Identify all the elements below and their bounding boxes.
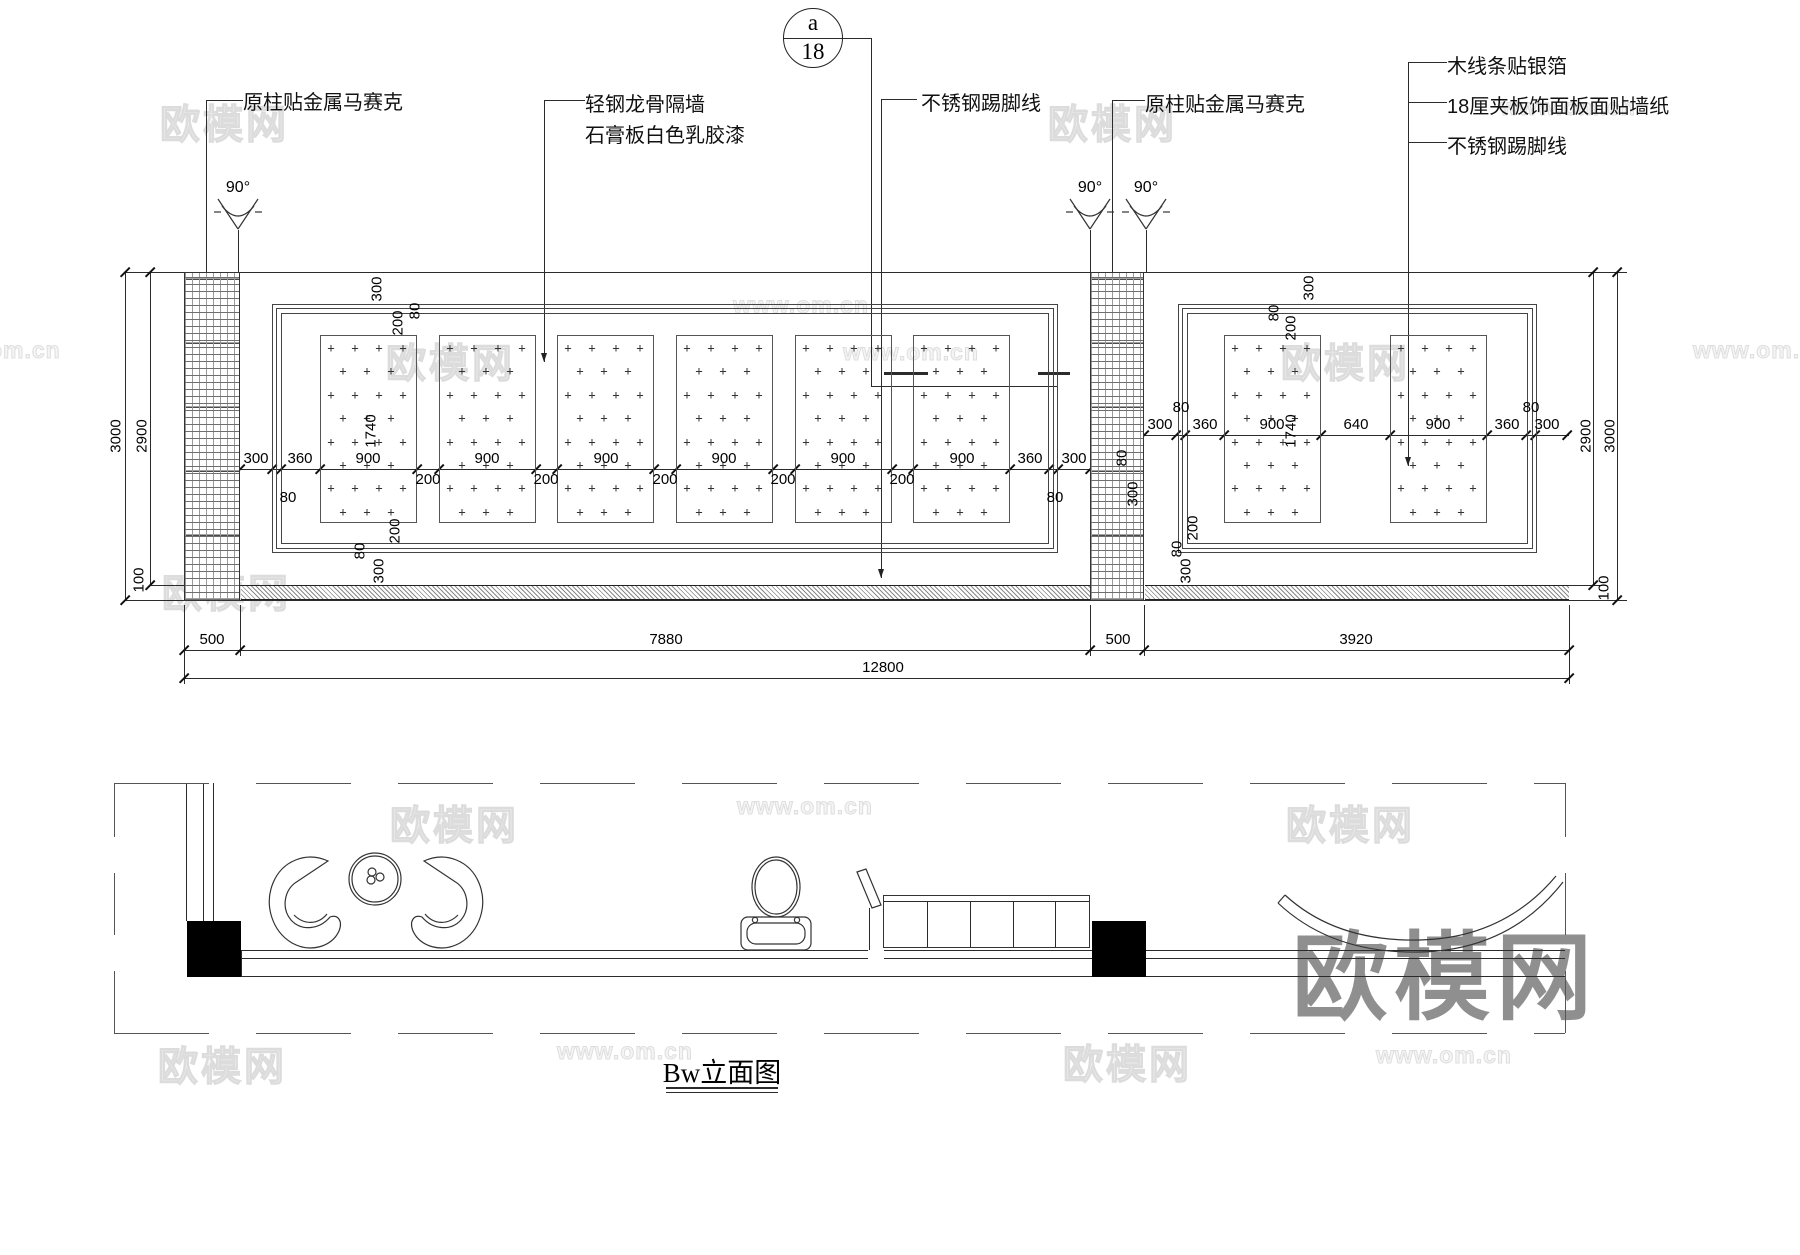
dim-label-vertical: 200 — [390, 310, 407, 335]
panel-cross-mark: + — [826, 389, 833, 401]
panel-cross-mark: + — [1303, 482, 1310, 494]
panel-cross-mark: + — [624, 459, 631, 471]
toilet-icon — [738, 853, 814, 953]
line — [1408, 62, 1447, 63]
panel-cross-mark: + — [1445, 482, 1452, 494]
dim-label-vertical: 300 — [1178, 558, 1195, 583]
panel-cross-mark: + — [695, 412, 702, 424]
panel-cross-mark: + — [624, 506, 631, 518]
line — [206, 100, 243, 101]
panel-cross-mark: + — [944, 342, 951, 354]
panel-cross-mark: + — [482, 506, 489, 518]
dim-label: 900 — [830, 450, 855, 467]
callout-label: 木线条贴银箔 — [1447, 50, 1567, 79]
panel-cross-mark: + — [1421, 436, 1428, 448]
dim-label-vertical: 80 — [1266, 305, 1283, 322]
panel-cross-mark: + — [862, 506, 869, 518]
panel-cross-mark: + — [636, 389, 643, 401]
dim-label-vertical: 2900 — [134, 419, 151, 452]
dim-label: 900 — [474, 450, 499, 467]
panel-cross-mark: + — [1267, 365, 1274, 377]
panel-cross-mark: + — [826, 342, 833, 354]
panel-cross-mark: + — [1255, 482, 1262, 494]
panel-cross-mark: + — [743, 506, 750, 518]
panel-cross-mark: + — [458, 506, 465, 518]
panel-cross-mark: + — [518, 389, 525, 401]
panel-cross-mark: + — [992, 342, 999, 354]
panel-cross-mark: + — [494, 389, 501, 401]
panel-cross-mark: + — [838, 506, 845, 518]
panel-cross-mark: + — [494, 436, 501, 448]
panel-cross-mark: + — [814, 459, 821, 471]
panel-cross-mark: + — [743, 459, 750, 471]
panel-cross-mark: + — [731, 342, 738, 354]
dim-label-vertical: 100 — [131, 567, 148, 592]
panel-cross-mark: + — [576, 506, 583, 518]
dim-label: 900 — [355, 450, 380, 467]
dim-label-vertical: 2900 — [1578, 419, 1595, 452]
panel-cross-mark: + — [1303, 389, 1310, 401]
panel-cross-mark: + — [719, 506, 726, 518]
dim-label-vertical: 100 — [1596, 575, 1613, 600]
panel-cross-mark: + — [850, 436, 857, 448]
line — [213, 783, 214, 921]
panel-cross-mark: + — [351, 482, 358, 494]
line — [666, 1092, 778, 1093]
dim-label: 300 — [1534, 416, 1559, 433]
panel-cross-mark: + — [850, 342, 857, 354]
panel-cross-mark: + — [980, 412, 987, 424]
line — [184, 605, 185, 684]
panel-cross-mark: + — [576, 459, 583, 471]
panel-cross-mark: + — [1421, 342, 1428, 354]
dim-label-vertical: 80 — [1169, 541, 1186, 558]
panel-cross-mark: + — [470, 436, 477, 448]
line — [881, 99, 917, 100]
line — [203, 783, 204, 921]
panel-cross-mark: + — [683, 389, 690, 401]
panel-cross-mark: + — [731, 482, 738, 494]
bench-divider — [1013, 901, 1014, 947]
panel-cross-mark: + — [446, 389, 453, 401]
panel-cross-mark: + — [1433, 506, 1440, 518]
callout-label: 石膏板白色乳胶漆 — [585, 119, 745, 148]
dim-label: 300 — [1061, 450, 1086, 467]
dim-label: 3920 — [1339, 631, 1372, 648]
panel-cross-mark: + — [755, 389, 762, 401]
dim-label-vertical: 300 — [1125, 481, 1142, 506]
panel-cross-mark: + — [387, 459, 394, 471]
panel-cross-mark: + — [932, 365, 939, 377]
dim-label: 360 — [1192, 416, 1217, 433]
panel-cross-mark: + — [518, 342, 525, 354]
dim-label: 360 — [1017, 450, 1042, 467]
line — [125, 272, 126, 600]
panel-cross-mark: + — [1469, 482, 1476, 494]
panel-cross-mark: + — [1409, 412, 1416, 424]
dim-label-vertical: 200 — [1185, 515, 1202, 540]
panel-cross-mark: + — [920, 482, 927, 494]
line — [238, 230, 239, 272]
panel-cross-mark: + — [1445, 389, 1452, 401]
panel-cross-mark: + — [339, 506, 346, 518]
panel-cross-mark: + — [327, 342, 334, 354]
panel-cross-mark: + — [612, 389, 619, 401]
panel-cross-mark: + — [387, 506, 394, 518]
panel-cross-mark: + — [707, 436, 714, 448]
panel-cross-mark: + — [1397, 342, 1404, 354]
dim-label: 80 — [1173, 399, 1190, 416]
line — [186, 783, 187, 921]
line — [241, 950, 242, 976]
panel-cross-mark: + — [992, 389, 999, 401]
panel-cross-mark: + — [850, 482, 857, 494]
wall-panel: ++++++++++++++++++++++++++++ — [913, 335, 1010, 523]
panel-cross-mark: + — [731, 389, 738, 401]
line — [184, 678, 1569, 679]
panel-cross-mark: + — [1457, 506, 1464, 518]
panel-cross-mark: + — [920, 389, 927, 401]
panel-cross-mark: + — [399, 436, 406, 448]
panel-cross-mark: + — [494, 482, 501, 494]
panel-cross-mark: + — [683, 436, 690, 448]
dim-label-vertical: 80 — [407, 303, 424, 320]
panel-cross-mark: + — [874, 389, 881, 401]
panel-cross-mark: + — [612, 342, 619, 354]
panel-cross-mark: + — [1231, 436, 1238, 448]
watermark: 欧模网 — [158, 1034, 287, 1092]
panel-cross-mark: + — [968, 389, 975, 401]
panel-cross-mark: + — [564, 436, 571, 448]
dim-label: 80 — [1047, 489, 1064, 506]
callout-label: 原柱贴金属马赛克 — [243, 86, 403, 115]
panel-cross-mark: + — [576, 365, 583, 377]
dim-label-vertical: 200 — [1283, 315, 1300, 340]
section-marker-letter: a — [784, 10, 842, 36]
panel-cross-mark: + — [600, 506, 607, 518]
line — [544, 100, 585, 101]
panel-cross-mark: + — [755, 482, 762, 494]
panel-cross-mark: + — [956, 506, 963, 518]
angle-label: 90° — [1134, 179, 1158, 197]
plan-boundary-left — [114, 783, 115, 1033]
panel-cross-mark: + — [838, 412, 845, 424]
dim-label: 900 — [949, 450, 974, 467]
panel-cross-mark: + — [387, 412, 394, 424]
dim-label-vertical: 300 — [1301, 275, 1318, 300]
panel-cross-mark: + — [743, 412, 750, 424]
wall-panel: ++++++++++++++++++++++++++++ — [795, 335, 892, 523]
watermark: 欧模网 — [390, 793, 519, 851]
panel-cross-mark: + — [470, 389, 477, 401]
watermark: www.om.cn — [737, 793, 873, 820]
angle-label: 90° — [1078, 179, 1102, 197]
panel-cross-mark: + — [1457, 412, 1464, 424]
callout-label: 不锈钢踢脚线 — [921, 87, 1041, 116]
panel-cross-mark: + — [1279, 342, 1286, 354]
dim-label: 200 — [770, 471, 795, 488]
panel-cross-mark: + — [1279, 389, 1286, 401]
panel-cross-mark: + — [636, 342, 643, 354]
panel-cross-mark: + — [506, 459, 513, 471]
dim-label-vertical: 80 — [1114, 450, 1131, 467]
panel-cross-mark: + — [339, 412, 346, 424]
dim-label: 12800 — [862, 659, 904, 676]
dim-label: 200 — [652, 471, 677, 488]
dim-label-vertical: 1740 — [1283, 414, 1300, 447]
panel-cross-mark: + — [1267, 459, 1274, 471]
dim-label: 7880 — [649, 631, 682, 648]
panel-cross-mark: + — [932, 412, 939, 424]
panel-cross-mark: + — [1291, 459, 1298, 471]
panel-cross-mark: + — [968, 342, 975, 354]
plan-bench — [883, 895, 1090, 948]
panel-cross-mark: + — [719, 412, 726, 424]
panel-cross-mark: + — [612, 482, 619, 494]
panel-cross-mark: + — [636, 436, 643, 448]
panel-cross-mark: + — [518, 482, 525, 494]
panel-cross-mark: + — [494, 342, 501, 354]
panel-cross-mark: + — [1409, 459, 1416, 471]
dim-label: 200 — [415, 471, 440, 488]
panel-cross-mark: + — [1255, 389, 1262, 401]
panel-cross-mark: + — [1457, 365, 1464, 377]
plan-column-left — [187, 921, 241, 977]
panel-cross-mark: + — [755, 436, 762, 448]
panel-cross-mark: + — [932, 506, 939, 518]
panel-cross-mark: + — [968, 482, 975, 494]
panel-cross-mark: + — [636, 482, 643, 494]
panel-cross-mark: + — [1303, 436, 1310, 448]
panel-cross-mark: + — [1433, 459, 1440, 471]
dim-label: 200 — [533, 471, 558, 488]
panel-cross-mark: + — [327, 389, 334, 401]
panel-cross-mark: + — [588, 342, 595, 354]
curved-counter-icon — [1270, 862, 1570, 962]
panel-cross-mark: + — [458, 412, 465, 424]
panel-cross-mark: + — [399, 389, 406, 401]
panel-cross-mark: + — [683, 342, 690, 354]
panel-cross-mark: + — [1409, 506, 1416, 518]
panel-cross-mark: + — [588, 482, 595, 494]
cad-drawing-canvas: 欧模网欧模网欧模网欧模网欧模网欧模网欧模网欧模网欧模网www.om.cnwww.… — [0, 0, 1800, 1255]
dim-label: 500 — [199, 631, 224, 648]
plan-boundary-bottom — [114, 1033, 1565, 1034]
panel-cross-mark: + — [1409, 365, 1416, 377]
dim-label: 640 — [1343, 416, 1368, 433]
panel-cross-mark: + — [624, 412, 631, 424]
panel-cross-mark: + — [1397, 482, 1404, 494]
panel-cross-mark: + — [339, 365, 346, 377]
panel-cross-mark: + — [612, 436, 619, 448]
dim-label: 80 — [1523, 399, 1540, 416]
panel-cross-mark: + — [339, 459, 346, 471]
dim-label: 360 — [1494, 416, 1519, 433]
panel-cross-mark: + — [814, 412, 821, 424]
panel-cross-mark: + — [506, 412, 513, 424]
plan-boundary-top — [114, 783, 1565, 784]
panel-cross-mark: + — [1421, 482, 1428, 494]
panel-cross-mark: + — [862, 459, 869, 471]
panel-cross-mark: + — [624, 365, 631, 377]
armchair-icon — [396, 853, 488, 951]
armchair-icon — [264, 853, 356, 951]
panel-cross-mark: + — [980, 506, 987, 518]
plan-column-right — [1092, 921, 1146, 977]
dim-label-vertical: 80 — [352, 543, 369, 560]
panel-cross-mark: + — [327, 482, 334, 494]
panel-cross-mark: + — [1421, 389, 1428, 401]
dim-label-vertical: 200 — [387, 518, 404, 543]
panel-cross-mark: + — [932, 459, 939, 471]
panel-cross-mark: + — [1445, 342, 1452, 354]
dim-label: 900 — [1259, 416, 1284, 433]
angle-fan-icon — [1122, 196, 1170, 232]
panel-cross-mark: + — [826, 482, 833, 494]
angle-label: 90° — [226, 179, 250, 197]
callout-label: 不锈钢踢脚线 — [1447, 130, 1567, 159]
panel-cross-mark: + — [862, 412, 869, 424]
panel-cross-mark: + — [387, 365, 394, 377]
dim-label: 360 — [287, 450, 312, 467]
callout-label: 18厘夹板饰面板面贴墙纸 — [1447, 90, 1669, 119]
line — [241, 976, 1565, 977]
panel-cross-mark: + — [506, 506, 513, 518]
dim-label: 200 — [889, 471, 914, 488]
line — [1112, 100, 1145, 101]
round-table-icon — [346, 850, 404, 908]
panel-cross-mark: + — [564, 389, 571, 401]
panel-cross-mark: + — [1279, 482, 1286, 494]
watermark: 欧模网 — [1063, 1032, 1192, 1090]
panel-cross-mark: + — [1255, 436, 1262, 448]
line — [125, 600, 1627, 601]
panel-cross-mark: + — [1231, 482, 1238, 494]
panel-cross-mark: + — [600, 412, 607, 424]
panel-cross-mark: + — [695, 365, 702, 377]
line — [869, 908, 870, 950]
panel-cross-mark: + — [1397, 436, 1404, 448]
panel-cross-mark: + — [920, 436, 927, 448]
panel-cross-mark: + — [446, 436, 453, 448]
panel-cross-mark: + — [564, 342, 571, 354]
drawing-title: Bw立面图 — [663, 1051, 782, 1090]
panel-cross-mark: + — [1303, 342, 1310, 354]
panel-cross-mark: + — [802, 482, 809, 494]
panel-cross-mark: + — [1231, 342, 1238, 354]
panel-cross-mark: + — [695, 506, 702, 518]
panel-cross-mark: + — [826, 436, 833, 448]
panel-cross-mark: + — [470, 342, 477, 354]
dim-label: 900 — [711, 450, 736, 467]
panel-cross-mark: + — [707, 389, 714, 401]
panel-cross-mark: + — [1243, 506, 1250, 518]
panel-cross-mark: + — [707, 482, 714, 494]
section-marker-a18: a 18 — [783, 8, 843, 68]
bench-divider — [970, 901, 971, 947]
panel-cross-mark: + — [458, 365, 465, 377]
panel-cross-mark: + — [399, 342, 406, 354]
dim-label-vertical: 300 — [371, 558, 388, 583]
wall-panel: ++++++++++++++++++++++++++++ — [557, 335, 654, 523]
dim-label-vertical: 1740 — [363, 414, 380, 447]
line — [1408, 102, 1447, 103]
panel-cross-mark: + — [944, 389, 951, 401]
mosaic-column-left — [184, 272, 240, 601]
wall-panel: ++++++++++++++++++++++++++++ — [439, 335, 536, 523]
panel-cross-mark: + — [600, 365, 607, 377]
line — [1146, 230, 1147, 272]
panel-cross-mark: + — [802, 389, 809, 401]
bench-divider — [1055, 901, 1056, 947]
dim-label: 80 — [280, 489, 297, 506]
panel-cross-mark: + — [1445, 436, 1452, 448]
panel-cross-mark: + — [731, 436, 738, 448]
panel-cross-mark: + — [351, 436, 358, 448]
dim-label: 300 — [243, 450, 268, 467]
bench-inner-line — [884, 901, 1089, 902]
panel-cross-mark: + — [814, 506, 821, 518]
panel-cross-mark: + — [399, 482, 406, 494]
leader-arrow — [878, 569, 884, 578]
panel-cross-mark: + — [351, 389, 358, 401]
panel-cross-mark: + — [814, 365, 821, 377]
wall-panel: ++++++++++++++++++++++++++++ — [676, 335, 773, 523]
panel-cross-mark: + — [1255, 342, 1262, 354]
panel-cross-mark: + — [874, 482, 881, 494]
bench-divider — [927, 901, 928, 947]
callout-label: 轻钢龙骨隔墙 — [585, 88, 705, 117]
dim-label-vertical: 300 — [369, 276, 386, 301]
panel-cross-mark: + — [506, 365, 513, 377]
line — [184, 650, 1569, 651]
panel-cross-mark: + — [1469, 436, 1476, 448]
panel-cross-mark: + — [707, 342, 714, 354]
panel-cross-mark: + — [375, 482, 382, 494]
panel-cross-mark: + — [363, 506, 370, 518]
panel-cross-mark: + — [802, 342, 809, 354]
line — [1569, 605, 1570, 684]
panel-cross-mark: + — [968, 436, 975, 448]
panel-cross-mark: + — [375, 389, 382, 401]
panel-cross-mark: + — [446, 482, 453, 494]
line — [1408, 142, 1447, 143]
panel-cross-mark: + — [992, 482, 999, 494]
panel-cross-mark: + — [363, 365, 370, 377]
panel-cross-mark: + — [695, 459, 702, 471]
panel-cross-mark: + — [564, 482, 571, 494]
panel-cross-mark: + — [351, 342, 358, 354]
panel-cross-mark: + — [850, 389, 857, 401]
panel-cross-mark: + — [719, 365, 726, 377]
skirting-strip-right — [1145, 585, 1569, 600]
dim-label: 300 — [1147, 416, 1172, 433]
panel-cross-mark: + — [862, 365, 869, 377]
panel-cross-mark: + — [838, 365, 845, 377]
panel-cross-mark: + — [588, 389, 595, 401]
watermark: om.cn — [0, 337, 61, 364]
panel-cross-mark: + — [802, 436, 809, 448]
dim-label-vertical: 3000 — [1602, 419, 1619, 452]
panel-cross-mark: + — [956, 412, 963, 424]
panel-cross-mark: + — [944, 436, 951, 448]
panel-cross-mark: + — [446, 342, 453, 354]
mosaic-column-right — [1090, 272, 1144, 601]
panel-cross-mark: + — [1243, 459, 1250, 471]
panel-cross-mark: + — [1469, 389, 1476, 401]
dim-label: 500 — [1105, 631, 1130, 648]
door-leaf-icon — [853, 866, 885, 912]
